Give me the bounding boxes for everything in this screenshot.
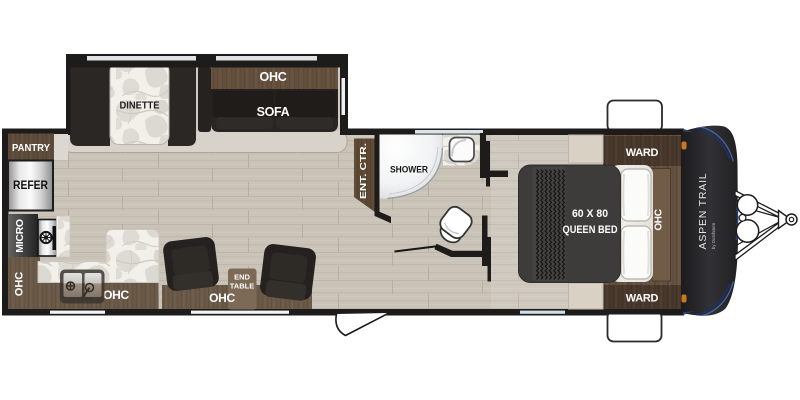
svg-text:ASPEN TRAIL: ASPEN TRAIL	[697, 173, 709, 250]
svg-text:ENT. CTR.: ENT. CTR.	[358, 143, 368, 199]
svg-text:PANTRY: PANTRY	[12, 142, 50, 154]
svg-text:by Dutchmen: by Dutchmen	[711, 222, 716, 249]
svg-text:TABLE: TABLE	[230, 282, 254, 291]
svg-text:MICRO: MICRO	[14, 219, 26, 253]
svg-text:60 X 80: 60 X 80	[572, 208, 608, 220]
svg-text:REFER: REFER	[13, 180, 49, 192]
svg-text:DINETTE: DINETTE	[120, 100, 160, 112]
svg-text:OHC: OHC	[260, 70, 287, 84]
svg-text:SOFA: SOFA	[257, 105, 290, 119]
svg-text:END: END	[234, 273, 250, 282]
svg-text:OHC: OHC	[14, 272, 26, 297]
svg-text:WARD: WARD	[626, 147, 659, 159]
svg-text:QUEEN BED: QUEEN BED	[563, 224, 618, 236]
svg-text:WARD: WARD	[626, 293, 659, 305]
svg-text:OHC: OHC	[654, 209, 665, 230]
svg-text:OHC: OHC	[103, 288, 129, 302]
svg-text:OHC: OHC	[209, 291, 235, 305]
svg-text:SHOWER: SHOWER	[390, 165, 428, 175]
